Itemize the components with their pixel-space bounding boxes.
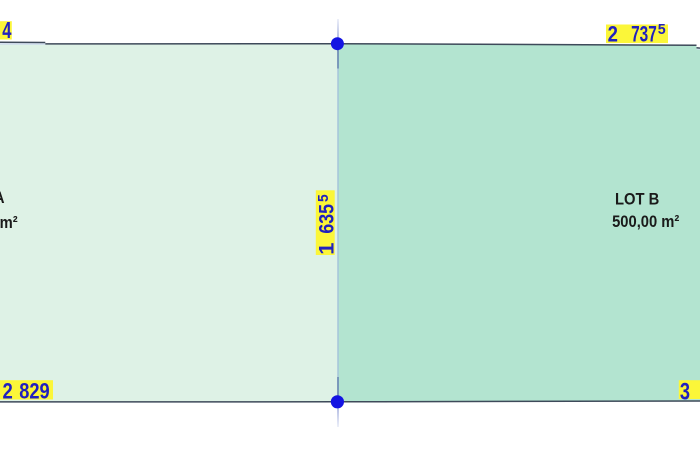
svg-text:737: 737 <box>631 23 657 47</box>
svg-text:3: 3 <box>680 378 690 405</box>
svg-text:1: 1 <box>314 243 339 255</box>
svg-text:4: 4 <box>2 19 12 44</box>
svg-text:500,00 m²: 500,00 m² <box>0 213 18 232</box>
svg-text:5: 5 <box>658 22 666 38</box>
svg-text:635: 635 <box>315 204 339 234</box>
svg-text:500,00 m²: 500,00 m² <box>612 212 680 231</box>
svg-text:2: 2 <box>3 380 13 404</box>
svg-text:LOT A: LOT A <box>0 188 5 207</box>
svg-text:LOT B: LOT B <box>615 189 659 208</box>
svg-text:5: 5 <box>314 194 330 202</box>
svg-text:2: 2 <box>608 23 618 47</box>
svg-text:829: 829 <box>19 380 49 404</box>
